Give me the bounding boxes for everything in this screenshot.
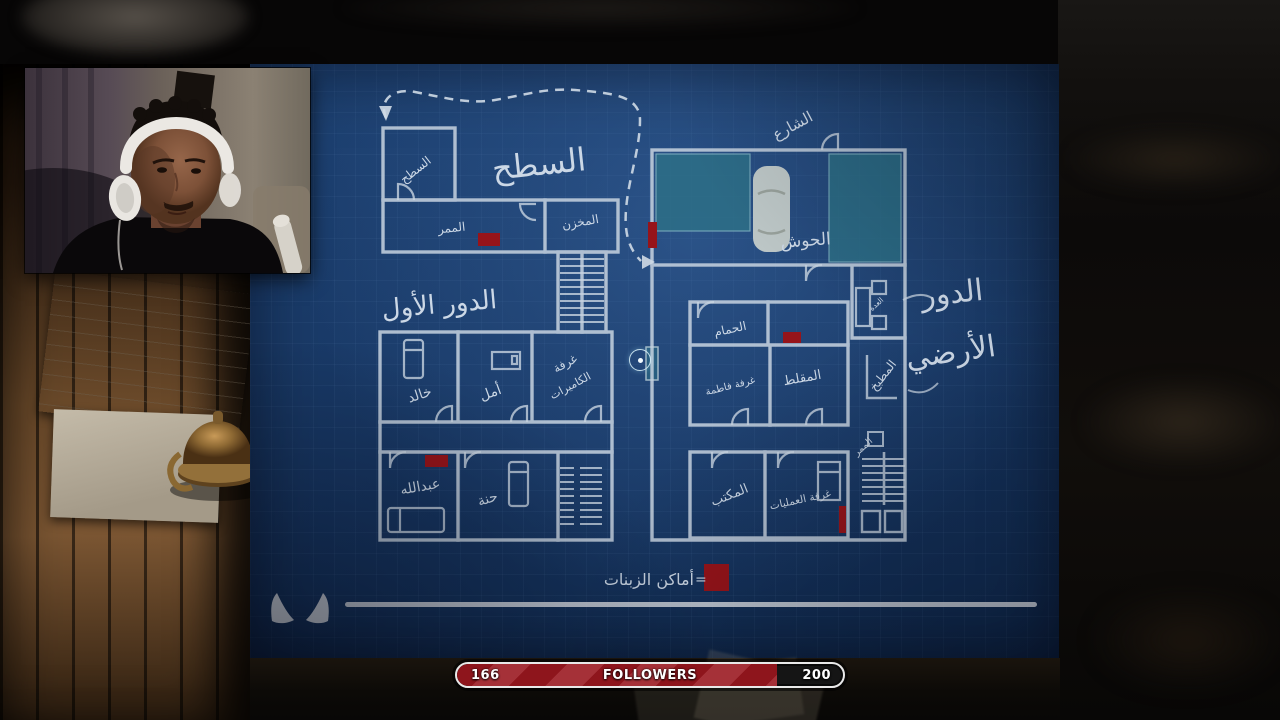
camera-markers xyxy=(425,222,846,591)
lamp-knob xyxy=(213,411,223,424)
signature-line xyxy=(345,602,1037,607)
room-label-office: المكتب xyxy=(709,482,751,511)
legend-label: أماكن الزبنات xyxy=(604,569,694,590)
room-label-hallway: الممر xyxy=(851,436,875,459)
walls xyxy=(380,128,905,540)
camera-marker xyxy=(478,233,500,246)
shadow-blob xyxy=(1085,378,1280,466)
room-label-kitchen: المطبخ xyxy=(867,357,900,393)
game-screen: السطح السطح الممر المخزن الدور الأول خال… xyxy=(0,0,1280,720)
webcam-overlay xyxy=(25,68,310,273)
followers-bar: 166 FOLLOWERS 200 xyxy=(455,662,845,688)
camera-marker xyxy=(648,222,657,248)
room-label-hanna: حنة xyxy=(476,488,500,510)
followers-label: FOLLOWERS xyxy=(457,664,843,686)
room-label-camera-room: الكاميرات xyxy=(548,370,593,402)
first-floor-title: الدور الأول xyxy=(380,282,498,325)
bed-icon xyxy=(388,508,444,532)
room-label-abdullah: عبدالله xyxy=(399,476,441,499)
route-arrow-icon xyxy=(379,106,392,121)
eye xyxy=(157,167,167,173)
room-label-operations: غرفة العمليات xyxy=(769,488,833,513)
logo-eyes-icon xyxy=(271,593,329,623)
room-label-camera-room: غرفة xyxy=(551,351,580,376)
camera-marker xyxy=(839,506,846,533)
room-label-bathroom: الحمام xyxy=(713,319,748,340)
bed-icon xyxy=(509,462,528,506)
headphones-earcup xyxy=(219,173,241,207)
room-label-khalid: خالد xyxy=(406,384,434,407)
room-label-roof-access: السطح xyxy=(397,153,433,186)
shadow-blob xyxy=(1095,590,1280,690)
eye xyxy=(191,168,201,174)
room-label-amal: أمل xyxy=(477,380,504,404)
room-label-corridor: الممر xyxy=(436,220,466,238)
legend-marker xyxy=(704,564,729,591)
shadow-blob xyxy=(1070,128,1280,190)
cursor-reticle xyxy=(629,349,651,371)
room-label-storage: المخزن xyxy=(561,212,600,233)
ground-floor-title: الأرضي xyxy=(903,326,998,376)
ground-floor-title: الدور xyxy=(917,273,985,315)
lamp-dome xyxy=(183,421,253,464)
blueprint-map[interactable]: السطح السطح الممر المخزن الدور الأول خال… xyxy=(250,64,1059,659)
street-label: الشارع xyxy=(769,108,815,144)
camera-marker xyxy=(425,455,448,467)
roof-title: السطح xyxy=(490,140,588,188)
table-icon xyxy=(492,352,520,369)
legend-equals: = xyxy=(695,572,707,588)
room-label-majlis: المقلط xyxy=(782,368,822,389)
followers-max: 200 xyxy=(802,664,831,686)
bed-icon xyxy=(404,340,423,378)
courtyard-label: الحوش xyxy=(780,229,832,252)
camera-marker xyxy=(783,332,801,343)
room-label-fatima: غرفة فاطمة xyxy=(704,375,756,398)
